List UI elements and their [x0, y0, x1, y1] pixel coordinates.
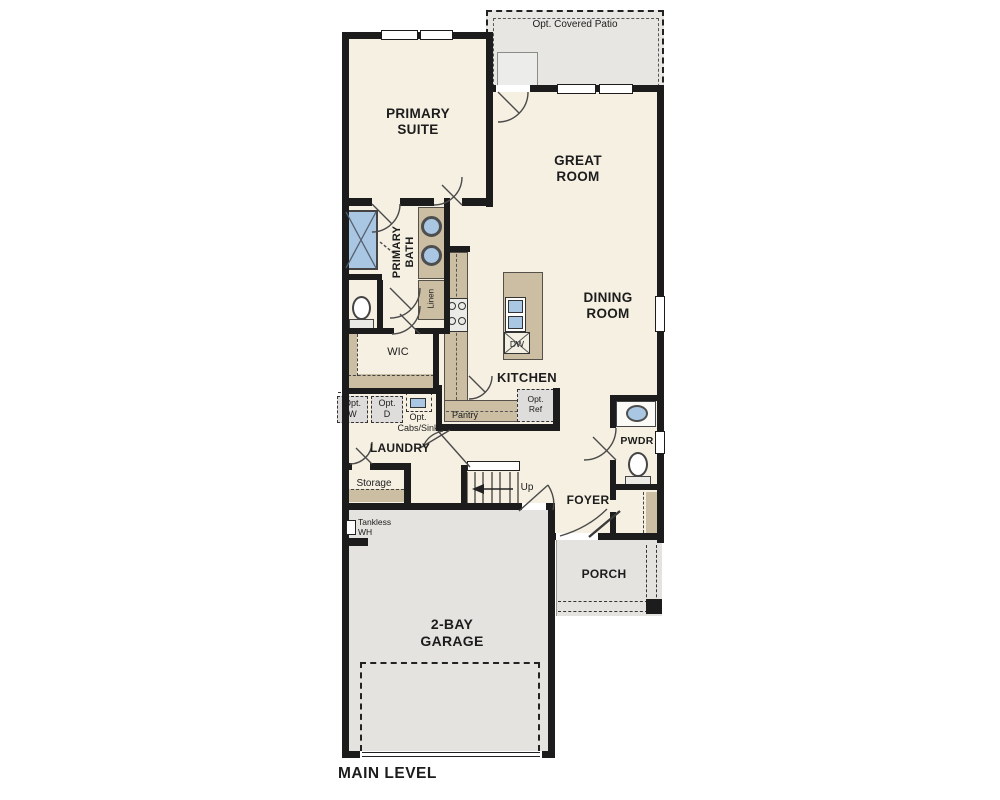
garage-door-line: [362, 756, 540, 757]
front-door-opening: [556, 533, 598, 540]
garage-entry-opening: [522, 503, 546, 510]
plan-title: MAIN LEVEL: [338, 765, 478, 783]
storage-shelf: [346, 489, 404, 502]
label-opt-washer: Opt. W: [337, 398, 368, 419]
wall-segment: [400, 198, 434, 206]
coat-closet-rod-dashed: [643, 492, 644, 533]
label-storage: Storage: [346, 478, 402, 490]
wall-segment: [342, 388, 439, 394]
wall-segment: [342, 198, 372, 206]
room-label-laundry: LAUNDRY: [360, 441, 440, 455]
coat-closet-shelf: [646, 492, 657, 533]
bath-toilet-bowl: [352, 296, 371, 320]
wall-segment: [486, 32, 493, 207]
wall-segment: [548, 503, 555, 758]
label-opt-ref: Opt. Ref: [517, 394, 554, 414]
window: [420, 30, 453, 40]
window: [599, 84, 633, 94]
wall-segment: [610, 395, 664, 401]
wic-rod-dashed: [357, 334, 358, 376]
wic-shelf-left: [348, 334, 357, 376]
wic-shelf-bottom: [348, 374, 434, 388]
opt-cabs-sink-basin: [410, 398, 426, 408]
room-label-wic: WIC: [368, 346, 428, 359]
wall-segment: [342, 274, 382, 280]
stair-landing: [467, 461, 520, 471]
wall-segment: [444, 198, 450, 334]
porch-dashed-edge: [558, 611, 648, 612]
wall-segment: [342, 328, 394, 334]
room-label-foyer: FOYER: [558, 493, 618, 507]
patio-step: [497, 52, 538, 88]
range-burner: [458, 317, 466, 325]
garage-door-line: [362, 752, 540, 753]
wall-segment: [377, 280, 383, 334]
porch-dashed-edge: [558, 601, 648, 602]
label-pantry: Pantry: [443, 410, 487, 421]
wic-rod-dashed: [348, 375, 434, 376]
room-label-primary-suite: PRIMARY SUITE: [358, 106, 478, 138]
wall-segment: [342, 463, 352, 470]
label-linen: Linen: [426, 284, 435, 314]
room-label-patio: Opt. Covered Patio: [500, 19, 650, 31]
window: [381, 30, 418, 40]
garage-bay-dashed-outline: [360, 662, 540, 751]
wall-segment: [444, 246, 470, 252]
room-label-garage: 2-BAY GARAGE: [392, 616, 512, 649]
pwdr-sink-basin: [626, 405, 648, 422]
room-label-pwdr: PWDR: [616, 435, 658, 447]
wall-segment: [342, 538, 368, 546]
label-opt-cabs-sink: Opt. Cabs/Sink: [389, 412, 447, 433]
wall-segment: [610, 395, 616, 428]
wall-segment: [436, 424, 560, 431]
label-dishwasher: DW: [504, 339, 530, 349]
label-tankless-wh: Tankless WH: [358, 517, 402, 537]
pwdr-toilet-bowl: [628, 452, 648, 477]
wall-segment: [553, 388, 560, 428]
room-label-great-room: GREAT ROOM: [518, 153, 638, 185]
wall-segment: [462, 198, 493, 206]
room-label-dining-room: DINING ROOM: [548, 290, 668, 322]
floor-plan: Opt. Covered Patio PRIMARY SUITE GREAT R…: [0, 0, 1000, 800]
range-burner: [458, 302, 466, 310]
bath-sink: [421, 216, 442, 237]
window: [557, 84, 596, 94]
label-up: Up: [516, 482, 538, 494]
room-label-primary-bath: PRIMARY BATH: [391, 220, 417, 284]
wall-segment: [342, 32, 349, 758]
wall-segment: [610, 512, 616, 533]
bath-sink: [421, 245, 442, 266]
room-label-kitchen: KITCHEN: [487, 370, 567, 385]
tankless-water-heater: [346, 520, 356, 535]
patio-door-opening: [496, 85, 530, 92]
wall-segment: [342, 503, 522, 510]
island-sink-basin: [508, 316, 523, 329]
room-label-porch: PORCH: [574, 567, 634, 581]
island-sink-basin: [508, 300, 523, 313]
wall-segment: [610, 484, 664, 490]
shower: [344, 210, 378, 270]
porch-post: [646, 599, 662, 614]
